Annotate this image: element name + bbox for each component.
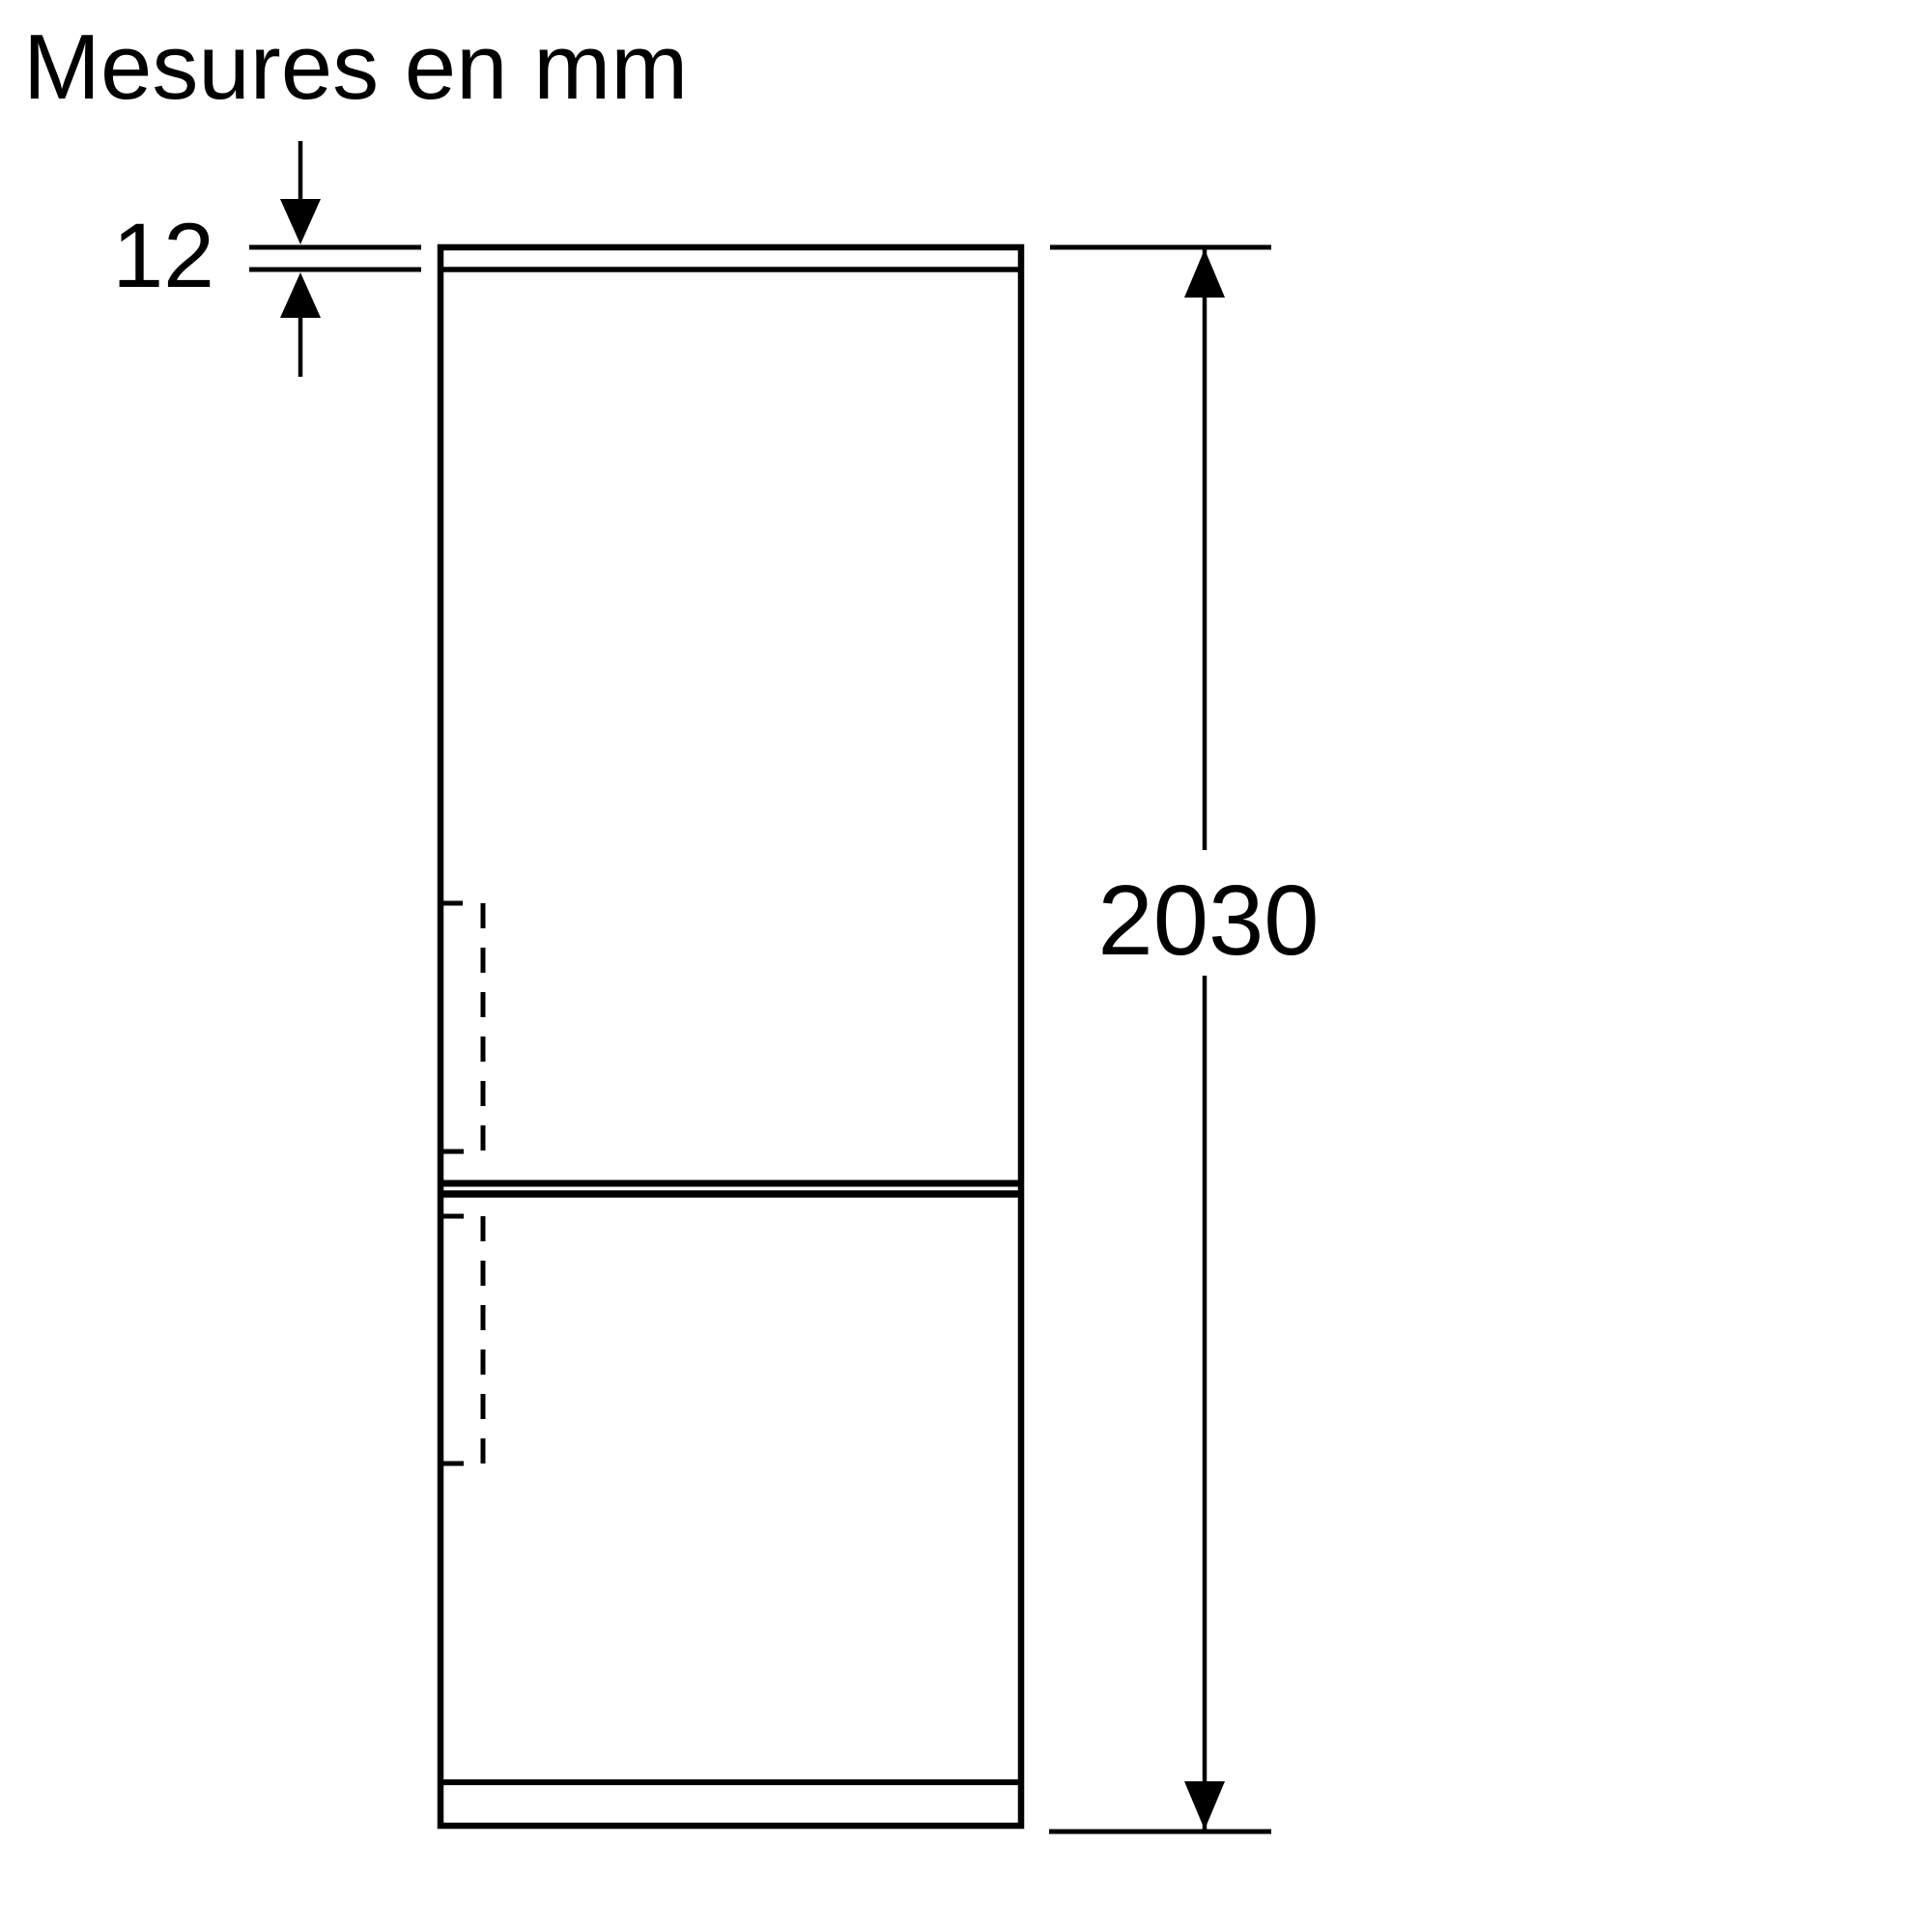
height-dimension: 2030 bbox=[1049, 247, 1320, 1832]
height-dimension-label: 2030 bbox=[1097, 865, 1319, 976]
diagram-title: Mesures en mm bbox=[23, 15, 688, 119]
arrow-up-icon bbox=[1184, 249, 1225, 298]
appliance-dimension-diagram: Mesures en mm 12 bbox=[0, 0, 1932, 1932]
upper-door-hinge-marker bbox=[440, 903, 483, 1151]
lower-door-hinge-marker bbox=[440, 1216, 483, 1463]
thickness-dimension: 12 bbox=[112, 141, 421, 377]
dimension-diagram-page: Mesures en mm 12 bbox=[0, 0, 1932, 1932]
arrow-down-icon bbox=[280, 199, 321, 244]
thickness-dimension-label: 12 bbox=[112, 205, 214, 307]
appliance-body-outline bbox=[440, 247, 1021, 1826]
appliance-outline bbox=[440, 247, 1021, 1826]
arrow-down-icon bbox=[1184, 1781, 1225, 1830]
arrow-up-icon bbox=[280, 272, 321, 318]
